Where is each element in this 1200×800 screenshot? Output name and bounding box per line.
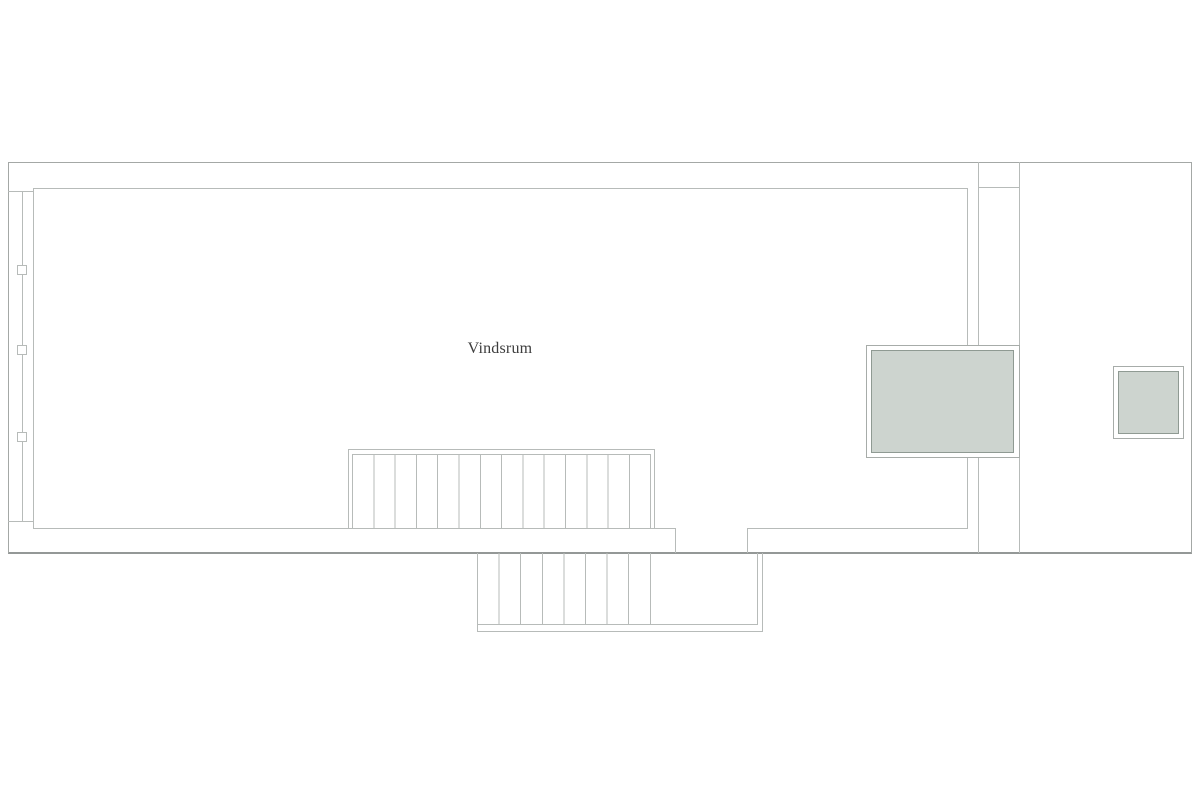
window-glyph-3 <box>17 432 27 442</box>
staircase-lower-right-outer <box>762 553 763 632</box>
room-label: Vindsrum <box>420 340 580 358</box>
staircase-lower-right-inner <box>757 553 758 625</box>
staircase-upper-top-outer <box>348 449 655 450</box>
window-strip-cap-bottom <box>8 521 34 522</box>
staircase-upper-treads <box>352 454 651 529</box>
skylight-large-glass <box>871 350 1014 453</box>
staircase-lower-bottom-inner <box>477 624 758 625</box>
partition-wall-top-line <box>978 187 1020 188</box>
window-strip-cap-top <box>8 191 34 192</box>
floor-plan: Vindsrum <box>0 0 1200 800</box>
staircase-lower-bottom-outer <box>477 631 763 632</box>
wall-inner-bottom-right <box>747 528 968 529</box>
stair-opening-jamb-left <box>675 528 676 553</box>
staircase-upper-top-inner <box>352 454 651 455</box>
wall-inner-top <box>33 188 968 189</box>
staircase-lower-left-edge <box>477 553 478 632</box>
staircase-lower-treads <box>477 553 651 625</box>
stair-opening-jamb-right <box>747 528 748 553</box>
staircase-upper-right-inner <box>650 454 651 529</box>
window-strip-line <box>22 191 23 522</box>
window-glyph-2 <box>17 345 27 355</box>
staircase-upper-right-outer <box>654 449 655 529</box>
skylight-small-glass <box>1118 371 1179 434</box>
wall-inner-left <box>33 188 34 529</box>
window-glyph-1 <box>17 265 27 275</box>
staircase-upper-left-outer <box>348 449 349 529</box>
